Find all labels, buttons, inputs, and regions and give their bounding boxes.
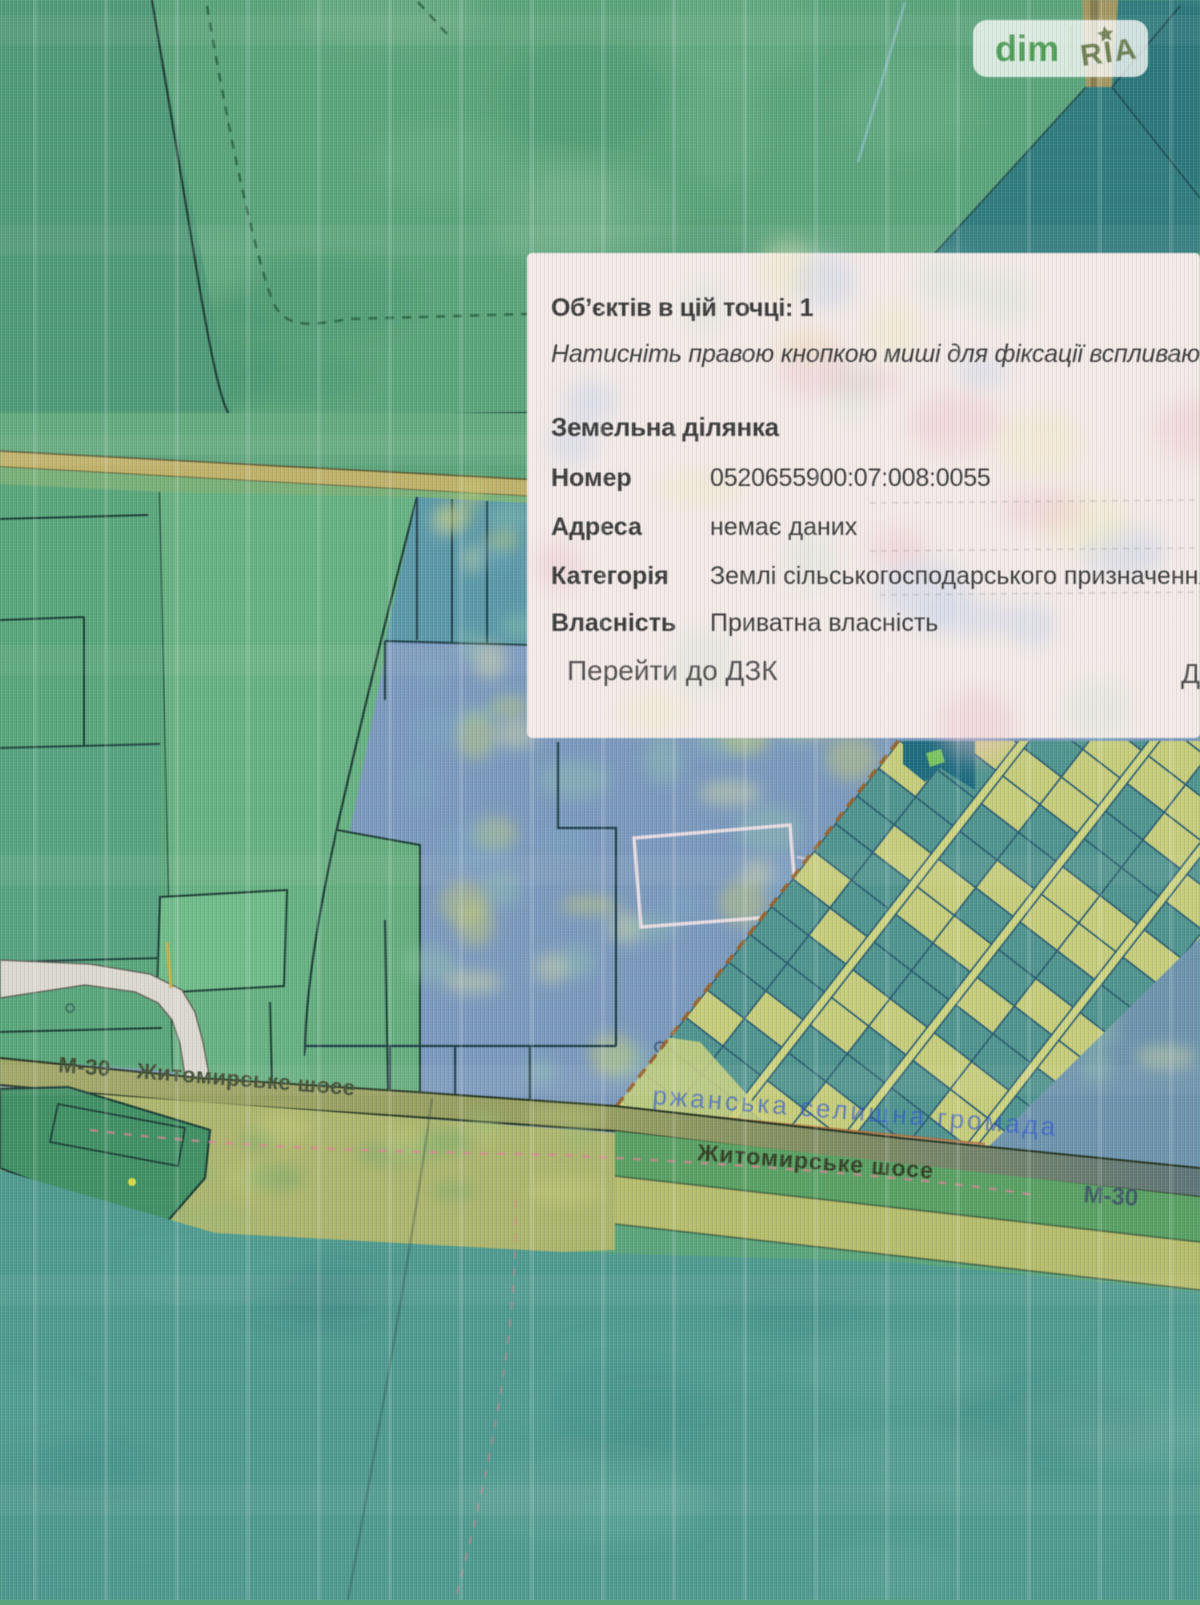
svg-text:Власність: Власність	[551, 609, 676, 637]
svg-text:Номер: Номер	[551, 464, 632, 492]
svg-text:Приватна власність: Приватна власність	[710, 609, 938, 637]
svg-text:0520655900:07:008:0055: 0520655900:07:008:0055	[710, 464, 991, 492]
svg-text:Обʼєктів в цій точці: 1: Обʼєктів в цій точці: 1	[551, 294, 814, 322]
svg-text:dim: dim	[995, 28, 1059, 69]
svg-text:Категорія: Категорія	[551, 562, 669, 590]
svg-text:М-30: М-30	[1083, 1181, 1139, 1212]
svg-text:немає даних: немає даних	[710, 513, 858, 541]
svg-text:Натисніть правою кнопкою миші: Натисніть правою кнопкою миші для фіксац…	[551, 340, 1200, 368]
svg-text:Д: Д	[1181, 658, 1200, 689]
svg-text:Перейти до ДЗК: Перейти до ДЗК	[567, 655, 778, 686]
svg-text:Адреса: Адреса	[551, 513, 643, 541]
svg-text:Землі сільськогосподарського п: Землі сільськогосподарського призначення	[710, 562, 1200, 590]
svg-text:Земельна ділянка: Земельна ділянка	[551, 412, 780, 442]
